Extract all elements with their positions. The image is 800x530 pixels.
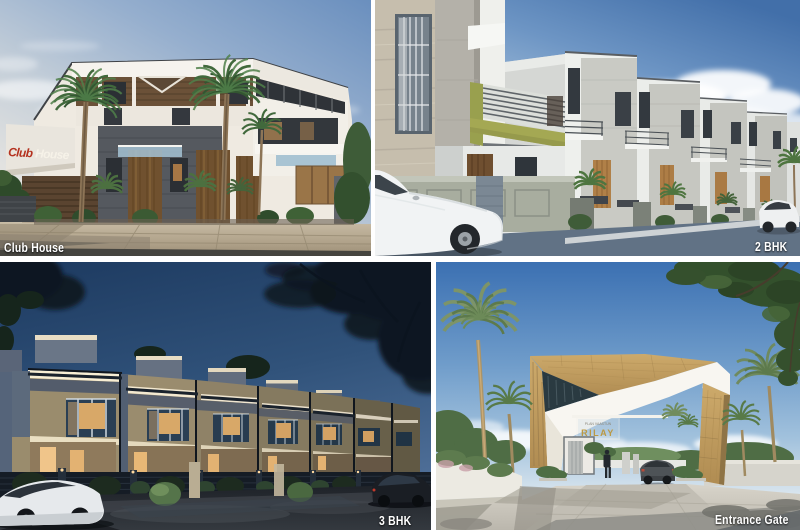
svg-text:PLAN VAASTUN: PLAN VAASTUN <box>585 422 612 426</box>
